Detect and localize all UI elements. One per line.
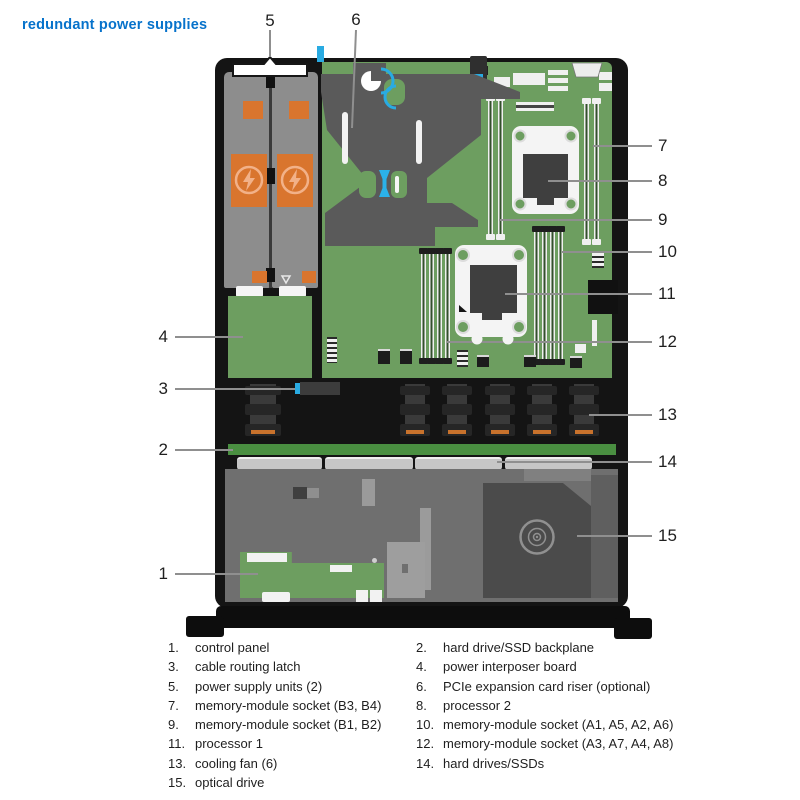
pin-header xyxy=(592,251,604,268)
control-panel-tab xyxy=(356,590,368,602)
legend-item: 11.processor 1 xyxy=(168,736,381,755)
legend-number: 2. xyxy=(416,640,443,655)
legend-number: 7. xyxy=(168,698,195,713)
legend-label: hard drive/SSD backplane xyxy=(443,640,594,655)
cooling-fan xyxy=(245,384,281,436)
cable-routing-latch-blue-tip xyxy=(295,383,300,394)
legend-left-column: 1.control panel 3.cable routing latch 5.… xyxy=(168,640,381,794)
legend-item: 8.processor 2 xyxy=(416,698,674,717)
io-port xyxy=(599,72,612,80)
memory-slot-a-left xyxy=(445,250,450,362)
pin-header xyxy=(327,337,337,363)
legend-label: cable routing latch xyxy=(195,659,301,674)
callout-1: 1 xyxy=(138,564,168,584)
io-port xyxy=(548,70,568,92)
legend-item: 14.hard drives/SSDs xyxy=(416,756,674,775)
leader-line-11 xyxy=(505,293,652,295)
legend-label: memory-module socket (B3, B4) xyxy=(195,698,381,713)
leader-line-1 xyxy=(175,573,258,575)
io-port xyxy=(513,73,545,85)
callout-15: 15 xyxy=(658,526,677,546)
screw-hole xyxy=(372,558,377,563)
legend-number: 10. xyxy=(416,717,443,732)
memory-slot-b3b4 xyxy=(584,100,589,243)
callout-6: 6 xyxy=(348,10,364,30)
board-connector xyxy=(570,356,582,368)
legend-label: cooling fan (6) xyxy=(195,756,277,771)
psu-handle xyxy=(266,268,275,282)
legend-label: control panel xyxy=(195,640,269,655)
callout-9: 9 xyxy=(658,210,667,230)
psu-bottom-square xyxy=(302,271,316,283)
legend-label: memory-module socket (A3, A7, A4, A8) xyxy=(443,736,674,751)
optical-drive xyxy=(483,483,591,598)
front-bezel xyxy=(216,606,630,628)
legend-label: hard drives/SSDs xyxy=(443,756,544,771)
control-panel-tab xyxy=(370,590,382,602)
leader-line-10 xyxy=(562,251,652,253)
hdd-backplane xyxy=(228,444,616,455)
board-connector xyxy=(378,349,390,364)
figure-title: redundant power supplies xyxy=(22,17,207,33)
legend-number: 11. xyxy=(168,736,195,751)
legend-number: 14. xyxy=(416,756,443,771)
callout-8: 8 xyxy=(658,171,667,191)
legend-label: optical drive xyxy=(195,775,264,790)
psu-power-panel xyxy=(277,154,313,207)
page: { "title": "redundant power supplies", "… xyxy=(0,0,800,800)
io-port xyxy=(599,83,612,91)
processor-2-chip-tab xyxy=(537,198,554,205)
board-connector xyxy=(575,344,586,353)
callout-14: 14 xyxy=(658,452,677,472)
psu-bottom-square xyxy=(252,271,267,283)
memory-slot-a-left xyxy=(429,250,434,362)
legend-item: 3.cable routing latch xyxy=(168,659,381,678)
legend-item: 9.memory-module socket (B1, B2) xyxy=(168,717,381,736)
legend-number: 3. xyxy=(168,659,195,674)
legend-label: PCIe expansion card riser (optional) xyxy=(443,679,650,694)
control-panel-connector xyxy=(247,553,287,562)
drive-bay-part xyxy=(293,487,307,499)
memory-slot-b1b2 xyxy=(488,97,493,238)
callout-11: 11 xyxy=(658,284,676,304)
legend-label: power interposer board xyxy=(443,659,577,674)
leader-line-12 xyxy=(447,341,652,343)
legend-label: memory-module socket (B1, B2) xyxy=(195,717,381,732)
psu-handle xyxy=(266,74,275,88)
leader-line-4 xyxy=(175,336,243,338)
callout-4: 4 xyxy=(138,327,168,347)
legend-item: 2.hard drive/SSD backplane xyxy=(416,640,674,659)
io-port xyxy=(494,77,510,87)
legend-label: processor 2 xyxy=(443,698,511,713)
drive-bay-part xyxy=(362,479,375,506)
board-connector xyxy=(516,102,554,111)
chassis-foot-right xyxy=(614,618,652,639)
callout-3: 3 xyxy=(138,379,168,399)
legend-number: 13. xyxy=(168,756,195,771)
callout-10: 10 xyxy=(658,242,677,262)
leader-line-13 xyxy=(589,414,652,416)
memory-slot-a-left xyxy=(421,250,426,362)
legend-number: 5. xyxy=(168,679,195,694)
board-connector xyxy=(524,355,536,367)
cable-routing-latch xyxy=(300,382,340,395)
callout-7: 7 xyxy=(658,136,667,156)
psu-label-square xyxy=(289,101,309,119)
legend-item: 7.memory-module socket (B3, B4) xyxy=(168,698,381,717)
memory-slot-b1b2 xyxy=(498,97,503,238)
cooling-fan xyxy=(569,384,599,436)
control-panel-connector xyxy=(330,565,352,572)
pin-header xyxy=(457,350,468,367)
legend-item: 13.cooling fan (6) xyxy=(168,756,381,775)
leader-line-14 xyxy=(497,461,652,463)
memory-slot-a-left xyxy=(437,250,442,362)
legend-label: power supply units (2) xyxy=(195,679,322,694)
leader-line-2 xyxy=(175,449,233,451)
board-cutout xyxy=(588,280,618,314)
legend-number: 6. xyxy=(416,679,443,694)
callout-12: 12 xyxy=(658,332,677,352)
legend-item: 4.power interposer board xyxy=(416,659,674,678)
drive-bay-part xyxy=(307,488,319,498)
legend-number: 12. xyxy=(416,736,443,751)
legend-number: 4. xyxy=(416,659,443,674)
legend-item: 15.optical drive xyxy=(168,775,381,794)
control-panel-tab xyxy=(262,592,290,602)
psu-label-square xyxy=(243,101,263,119)
legend-item: 6.PCIe expansion card riser (optional) xyxy=(416,679,674,698)
chassis-foot-left xyxy=(186,616,224,637)
callout-13: 13 xyxy=(658,405,677,425)
leader-line-8 xyxy=(548,180,652,182)
leader-line-7 xyxy=(593,145,652,147)
legend-item: 10.memory-module socket (A1, A5, A2, A6) xyxy=(416,717,674,736)
psu-power-panel xyxy=(231,154,267,207)
legend-number: 15. xyxy=(168,775,195,790)
legend-number: 9. xyxy=(168,717,195,732)
board-connector xyxy=(477,355,489,367)
callout-2: 2 xyxy=(138,440,168,460)
legend-item: 5.power supply units (2) xyxy=(168,679,381,698)
chassis-blue-tab xyxy=(317,46,324,62)
drive-bay-block-notch xyxy=(402,564,408,573)
memory-slot-b3b4 xyxy=(594,100,599,243)
callout-5: 5 xyxy=(262,11,278,31)
legend-item: 12.memory-module socket (A3, A7, A4, A8) xyxy=(416,736,674,755)
psu-handle xyxy=(266,168,275,184)
board-connector xyxy=(400,349,412,364)
legend-label: processor 1 xyxy=(195,736,263,751)
legend-item: 1.control panel xyxy=(168,640,381,659)
cooling-fan xyxy=(527,384,557,436)
legend-right-column: 2.hard drive/SSD backplane 4.power inter… xyxy=(416,640,674,775)
drive-bay-band xyxy=(524,469,591,481)
riser-latch-blue-tip xyxy=(473,74,483,84)
leader-line-15 xyxy=(577,535,652,537)
processor-1-chip xyxy=(470,265,517,313)
cooling-fan xyxy=(400,384,430,436)
cooling-fan xyxy=(485,384,515,436)
leader-line-3 xyxy=(175,388,295,390)
legend-number: 8. xyxy=(416,698,443,713)
processor-2-chip xyxy=(523,154,568,198)
legend-label: memory-module socket (A1, A5, A2, A6) xyxy=(443,717,674,732)
cooling-fan xyxy=(442,384,472,436)
legend-number: 1. xyxy=(168,640,195,655)
leader-line-9 xyxy=(499,219,652,221)
processor-1-chip-tab xyxy=(482,313,502,320)
